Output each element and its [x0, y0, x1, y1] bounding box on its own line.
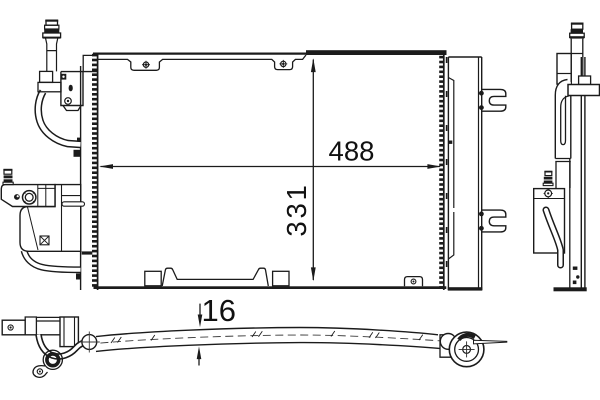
svg-text:488: 488 — [329, 136, 375, 167]
svg-text:16: 16 — [201, 293, 235, 328]
svg-text:331: 331 — [281, 182, 312, 236]
